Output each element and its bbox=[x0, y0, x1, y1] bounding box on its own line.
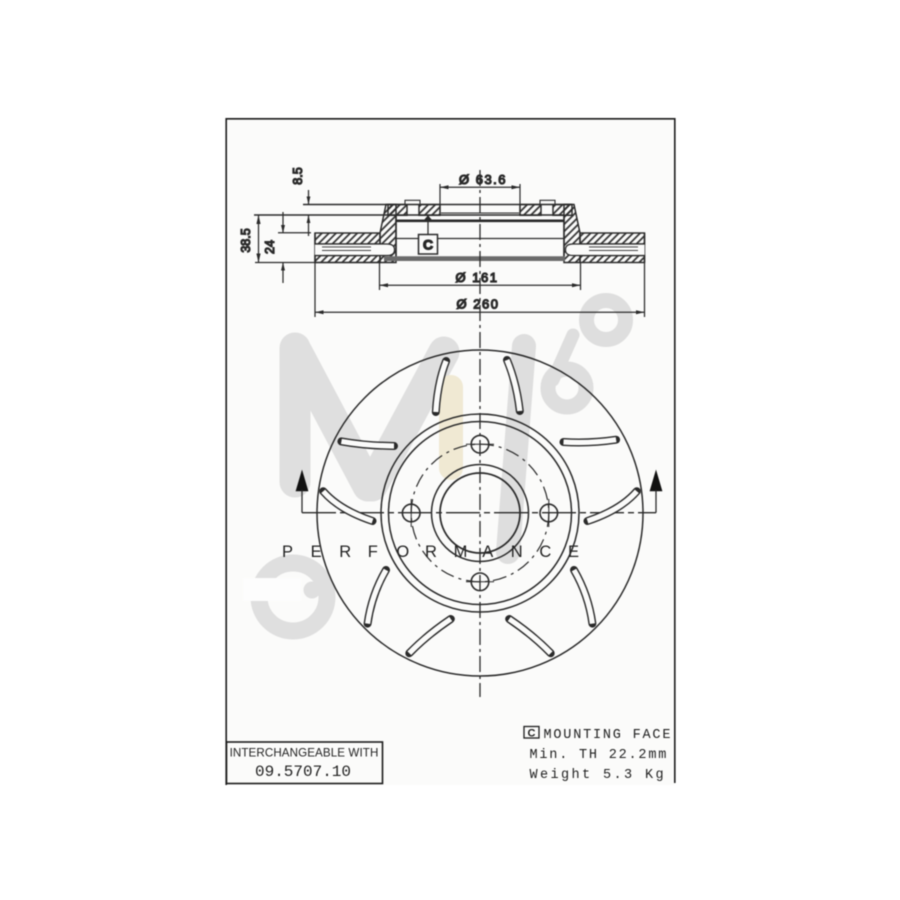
svg-text:Min. TH 22.2mm: Min. TH 22.2mm bbox=[530, 748, 669, 763]
svg-text:8.5: 8.5 bbox=[291, 167, 305, 184]
svg-text:R: R bbox=[425, 543, 437, 561]
svg-text:24: 24 bbox=[263, 240, 277, 254]
svg-text:R: R bbox=[339, 543, 351, 561]
svg-text:Weight 5.3 Kg: Weight 5.3 Kg bbox=[530, 768, 667, 783]
svg-text:C: C bbox=[423, 237, 433, 253]
svg-text:09.5707.10: 09.5707.10 bbox=[255, 763, 351, 781]
svg-text:F: F bbox=[368, 543, 378, 561]
svg-text:C: C bbox=[528, 728, 536, 740]
svg-text:MOUNTING FACE: MOUNTING FACE bbox=[544, 728, 673, 743]
svg-text:Ø 260: Ø 260 bbox=[457, 297, 500, 312]
svg-text:P: P bbox=[282, 543, 293, 561]
svg-text:Ø 161: Ø 161 bbox=[456, 270, 499, 285]
svg-text:Ø 63.6: Ø 63.6 bbox=[459, 172, 507, 187]
svg-text:INTERCHANGEABLE WITH: INTERCHANGEABLE WITH bbox=[230, 747, 379, 760]
svg-text:38.5: 38.5 bbox=[239, 228, 253, 252]
svg-text:O: O bbox=[396, 543, 409, 561]
